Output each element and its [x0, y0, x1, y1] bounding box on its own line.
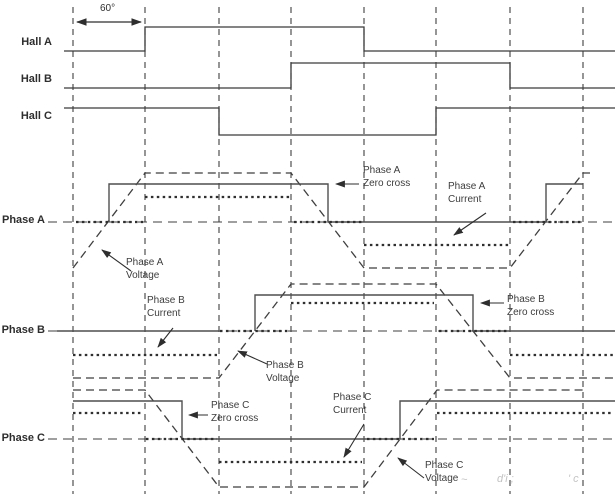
hall-b-label: Hall B: [6, 73, 52, 85]
annotation-line: Phase C: [425, 460, 463, 473]
phase-a-current-arrow: [454, 213, 486, 235]
annotation-line: Phase A: [448, 181, 485, 194]
phase-c-zero-cross-annotation: Phase C Zero cross: [211, 400, 258, 425]
annotation-line: Voltage: [266, 373, 304, 386]
hall-c-label: Hall C: [6, 110, 52, 122]
annotation-line: Phase B: [266, 360, 304, 373]
annotation-line: Phase C: [333, 392, 371, 405]
phase-a-zero-cross-trace: [109, 184, 583, 222]
hall-traces: [64, 27, 615, 135]
phase-c-voltage-arrow: [398, 458, 424, 478]
watermark-fragment: ~: [461, 474, 467, 486]
phase-b-label: Phase B: [0, 324, 45, 336]
annotation-line: Phase A: [126, 257, 163, 270]
phase-b-voltage-arrow: [238, 351, 267, 364]
annotation-line: Zero cross: [211, 413, 258, 426]
phase-a-zero-cross-annotation: Phase A Zero cross: [363, 165, 410, 190]
hall-a-trace: [64, 27, 615, 51]
phase-a-voltage-trace: [73, 173, 590, 268]
annotation-line: Current: [333, 405, 371, 418]
watermark-fragment: ' c: [568, 473, 579, 485]
annotation-line: Current: [147, 308, 185, 321]
annotation-line: Current: [448, 194, 485, 207]
phase-b-voltage-annotation: Phase B Voltage: [266, 360, 304, 385]
grid-lines: [73, 7, 583, 494]
phase-a-voltage-annotation: Phase A Voltage: [126, 257, 163, 282]
annotation-line: Voltage: [126, 270, 163, 283]
phase-c-label: Phase C: [0, 432, 45, 444]
phase-c-voltage-annotation: Phase C Voltage: [425, 460, 463, 485]
annotation-line: Zero cross: [507, 307, 554, 320]
phase-a-label: Phase A: [0, 214, 45, 226]
annotation-line: Phase A: [363, 165, 410, 178]
hall-a-label: Hall A: [6, 36, 52, 48]
phase-c-current-annotation: Phase C Current: [333, 392, 371, 417]
phase-c-current-trace: [73, 413, 612, 462]
annotation-line: Zero cross: [363, 178, 410, 191]
phase-b-current-annotation: Phase B Current: [147, 295, 185, 320]
phase-current-traces: [73, 197, 615, 462]
waveform-canvas: [0, 0, 616, 499]
annotation-line: Phase B: [147, 295, 185, 308]
watermark-fragment: d'i ;: [497, 473, 514, 485]
commutation-timing-diagram: 60° Hall A Hall B Hall C Phase A Phase B…: [0, 0, 616, 499]
annotation-line: Phase B: [507, 294, 554, 307]
phase-c-current-arrow: [344, 424, 364, 457]
annotation-line: Phase C: [211, 400, 258, 413]
phase-a-current-annotation: Phase A Current: [448, 181, 485, 206]
annotation-line: Voltage: [425, 473, 463, 486]
sixty-degree-label: 60°: [100, 3, 115, 14]
phase-b-zero-cross-annotation: Phase B Zero cross: [507, 294, 554, 319]
hall-c-trace: [64, 108, 615, 135]
hall-b-trace: [64, 63, 615, 88]
